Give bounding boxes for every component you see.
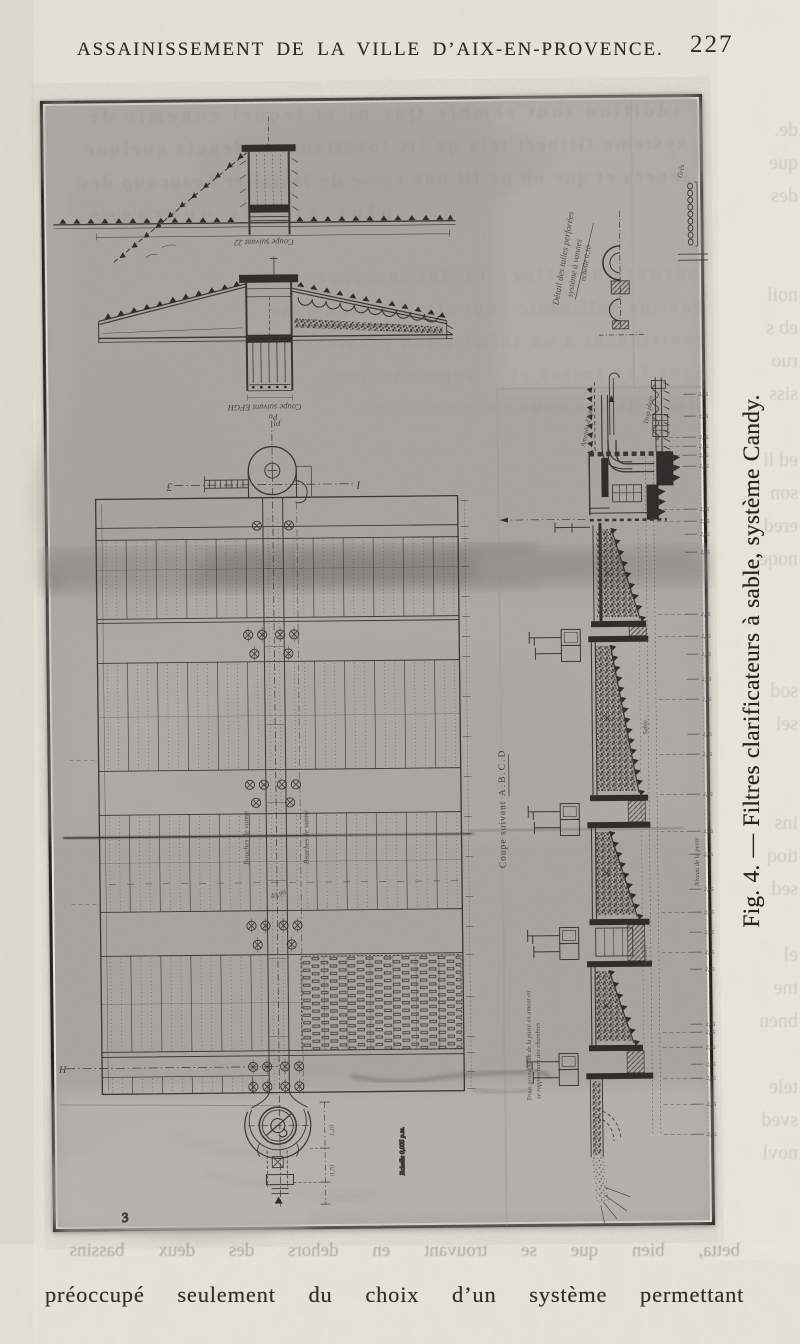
svg-text:Gravier: Gravier	[642, 944, 649, 965]
svg-text:1,10: 1,10	[329, 1124, 336, 1136]
svg-text:se rapprochant des chambres: se rapprochant des chambres	[535, 1022, 543, 1099]
svg-text:2,85: 2,85	[700, 550, 710, 556]
svg-text:2,75: 2,75	[699, 414, 709, 420]
svg-text:2,15: 2,15	[700, 507, 710, 513]
svg-text:£: £	[166, 482, 172, 494]
svg-text:2,15: 2,15	[699, 453, 709, 459]
svg-text:seront installees la decantati: seront installees la decantation	[316, 263, 697, 288]
svg-text:2,35: 2,35	[698, 392, 708, 398]
svg-text:Coupe suivant: Coupe suivant	[498, 801, 509, 869]
svg-text:2,25: 2,25	[702, 697, 712, 703]
svg-text:2,75: 2,75	[701, 612, 711, 618]
svg-text:Sable: Sable	[642, 720, 649, 735]
svg-text:Echelle 0,005 p.m.: Echelle 0,005 p.m.	[399, 1126, 407, 1176]
svg-text:0,70: 0,70	[329, 1164, 336, 1176]
svg-text:2,25: 2,25	[701, 652, 711, 658]
svg-text:2,15: 2,15	[702, 732, 712, 738]
svg-text:Pa: Pa	[269, 413, 279, 422]
svg-text:2,85: 2,85	[700, 532, 710, 538]
svg-text:2,05: 2,05	[702, 677, 712, 683]
svg-text:2,45: 2,45	[700, 518, 710, 525]
svg-text:Coupe suivant 22: Coupe suivant 22	[233, 237, 293, 248]
svg-text:Trous grandissant de la paroi: Trous grandissant de la paroi en amont e…	[525, 991, 533, 1101]
svg-text:2,35: 2,35	[699, 464, 709, 470]
svg-text:Coupe suivant EFGH: Coupe suivant EFGH	[227, 402, 302, 413]
svg-text:Niveau de la pente: Niveau de la pente	[694, 837, 702, 887]
svg-text:H: H	[58, 1065, 67, 1076]
svg-text:2,25: 2,25	[701, 634, 711, 640]
svg-text:Bouches de vanne: Bouches de vanne	[241, 810, 251, 865]
svg-text:A.B.C.D: A.B.C.D	[498, 749, 509, 797]
svg-text:Bouches de vanne: Bouches de vanne	[301, 809, 311, 864]
svg-text:2,15: 2,15	[699, 444, 709, 450]
svg-text:2,15: 2,15	[699, 435, 709, 441]
